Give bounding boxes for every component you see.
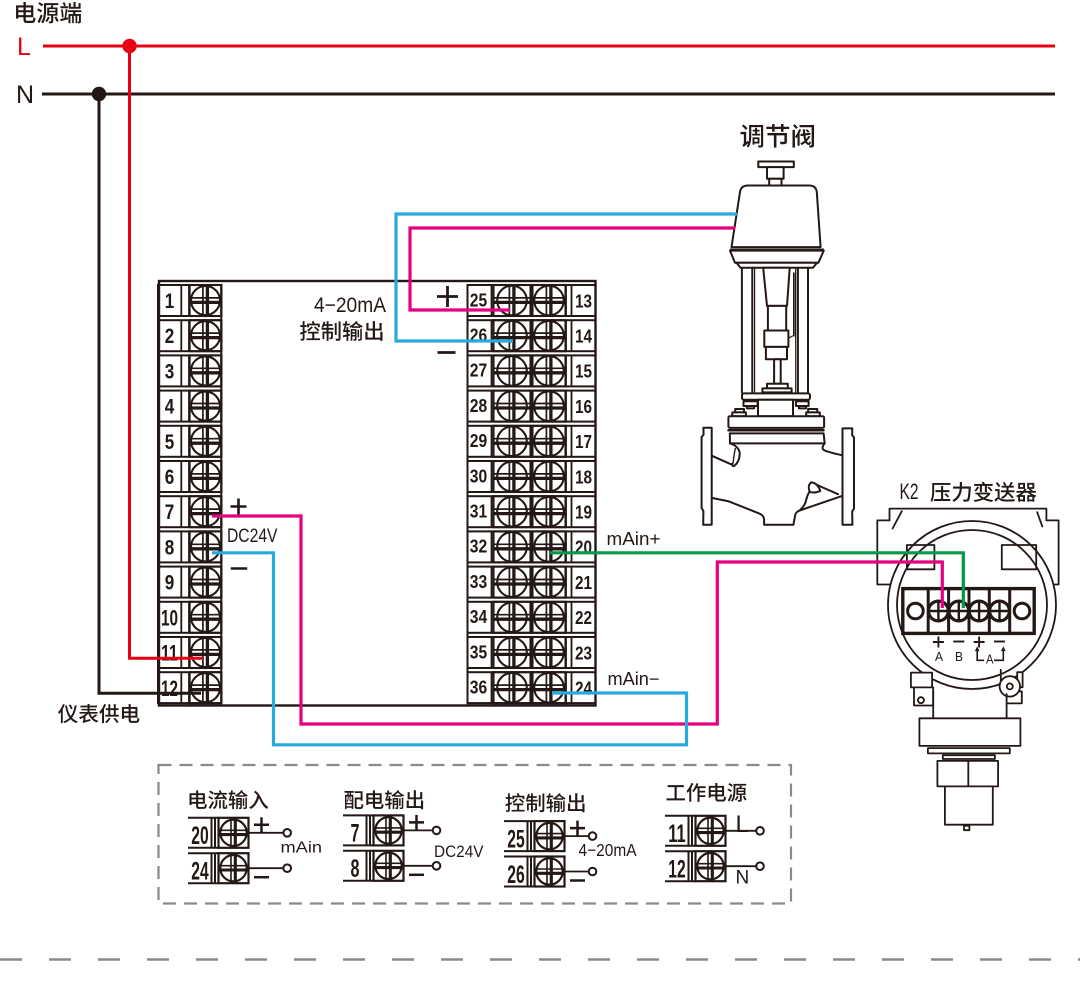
svg-text:N: N bbox=[736, 868, 750, 889]
svg-text:3: 3 bbox=[165, 360, 175, 383]
svg-text:5: 5 bbox=[165, 431, 175, 454]
svg-text:18: 18 bbox=[575, 466, 592, 487]
svg-text:26: 26 bbox=[507, 861, 524, 889]
svg-text:24: 24 bbox=[191, 858, 208, 886]
svg-text:31: 31 bbox=[470, 501, 487, 522]
svg-text:36: 36 bbox=[470, 677, 487, 698]
svg-text:A: A bbox=[935, 649, 943, 664]
svg-text:12: 12 bbox=[161, 676, 178, 701]
svg-text:10: 10 bbox=[161, 606, 178, 631]
svg-text:33: 33 bbox=[470, 571, 487, 592]
svg-text:9: 9 bbox=[165, 572, 175, 595]
svg-text:L: L bbox=[736, 811, 749, 838]
svg-text:L: L bbox=[17, 33, 31, 61]
svg-text:25: 25 bbox=[507, 825, 524, 853]
svg-text:32: 32 bbox=[470, 536, 487, 557]
svg-text:DC24V: DC24V bbox=[227, 525, 278, 547]
svg-text:11: 11 bbox=[161, 641, 178, 666]
svg-text:K2: K2 bbox=[900, 479, 919, 504]
svg-text:12: 12 bbox=[668, 856, 685, 884]
svg-text:20: 20 bbox=[575, 537, 592, 558]
svg-text:13: 13 bbox=[575, 290, 592, 311]
svg-text:mAin+: mAin+ bbox=[607, 529, 661, 549]
svg-text:11: 11 bbox=[668, 820, 685, 848]
svg-text:27: 27 bbox=[470, 360, 487, 381]
svg-text:8: 8 bbox=[351, 855, 360, 883]
svg-text:24: 24 bbox=[575, 678, 593, 699]
svg-text:15: 15 bbox=[575, 361, 592, 382]
svg-text:7: 7 bbox=[165, 501, 175, 524]
svg-text:25: 25 bbox=[470, 289, 487, 310]
svg-text:7: 7 bbox=[351, 820, 360, 848]
svg-text:A: A bbox=[986, 653, 994, 667]
svg-text:29: 29 bbox=[470, 430, 487, 451]
svg-text:35: 35 bbox=[470, 641, 487, 662]
svg-text:28: 28 bbox=[470, 395, 487, 416]
svg-text:B: B bbox=[955, 649, 963, 664]
svg-text:20: 20 bbox=[191, 822, 208, 850]
svg-text:DC24V: DC24V bbox=[434, 843, 484, 861]
svg-text:4−20mA: 4−20mA bbox=[314, 294, 386, 317]
svg-text:mAin−: mAin− bbox=[608, 669, 660, 689]
svg-text:17: 17 bbox=[575, 431, 592, 452]
svg-text:4−20mA: 4−20mA bbox=[579, 840, 637, 860]
svg-text:19: 19 bbox=[575, 502, 592, 523]
svg-text:2: 2 bbox=[165, 325, 175, 348]
svg-text:16: 16 bbox=[575, 396, 592, 417]
svg-text:1: 1 bbox=[165, 290, 175, 313]
svg-text:mAin: mAin bbox=[281, 840, 323, 857]
svg-text:34: 34 bbox=[470, 606, 488, 627]
svg-text:14: 14 bbox=[575, 326, 593, 347]
svg-text:4: 4 bbox=[165, 396, 175, 419]
svg-text:8: 8 bbox=[165, 536, 175, 559]
svg-text:23: 23 bbox=[575, 642, 592, 663]
svg-text:21: 21 bbox=[575, 572, 592, 593]
svg-text:22: 22 bbox=[575, 607, 592, 628]
svg-text:30: 30 bbox=[470, 465, 487, 486]
svg-text:N: N bbox=[16, 81, 34, 109]
svg-text:6: 6 bbox=[165, 466, 175, 489]
